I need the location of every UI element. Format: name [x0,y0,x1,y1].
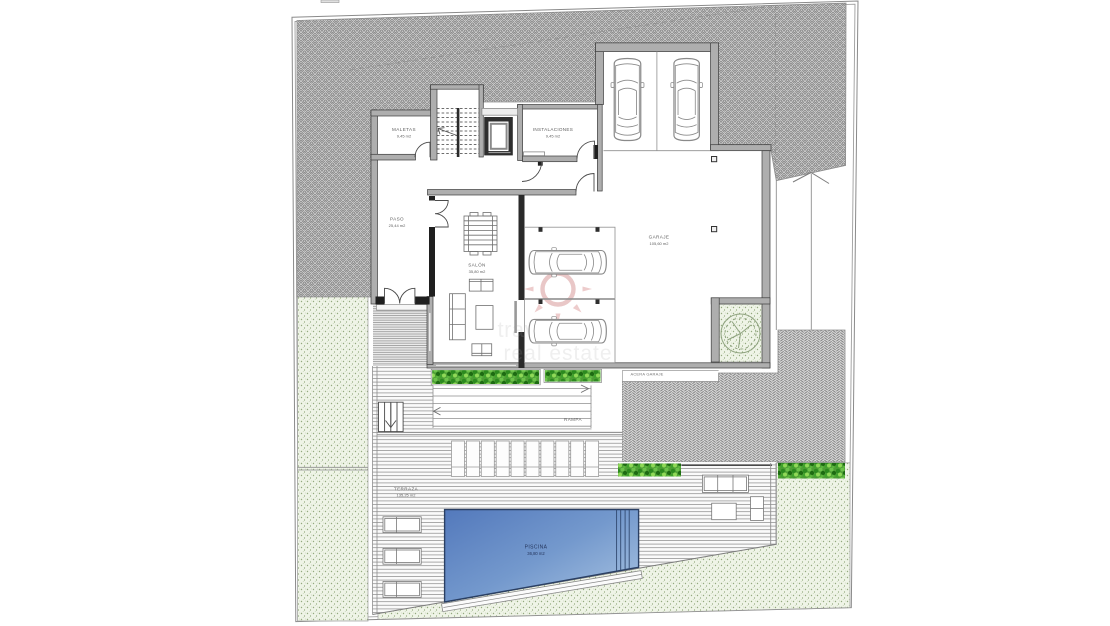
svg-text:105,60 m2: 105,60 m2 [650,241,670,246]
svg-text:MALETAS: MALETAS [392,127,416,132]
svg-text:135,25 m2: 135,25 m2 [397,493,417,498]
svg-text:TERRAZA: TERRAZA [394,487,419,492]
svg-text:RAMPA: RAMPA [564,417,583,422]
svg-text:PASO: PASO [390,217,404,222]
svg-text:35,80 m2: 35,80 m2 [469,269,486,274]
svg-text:9,45 m2: 9,45 m2 [546,134,561,139]
svg-text:PISCINA: PISCINA [525,545,548,551]
svg-text:INSTALACIONES: INSTALACIONES [533,127,573,132]
svg-text:25,44 m2: 25,44 m2 [389,223,406,228]
svg-text:SALÓN: SALÓN [468,262,486,268]
svg-text:real estate: real estate [503,342,612,365]
svg-text:9,45 m2: 9,45 m2 [397,134,412,139]
svg-text:36,80 m2: 36,80 m2 [527,551,545,556]
svg-text:ACERA GARAJE: ACERA GARAJE [630,371,663,376]
svg-text:GARAJE: GARAJE [649,235,670,240]
